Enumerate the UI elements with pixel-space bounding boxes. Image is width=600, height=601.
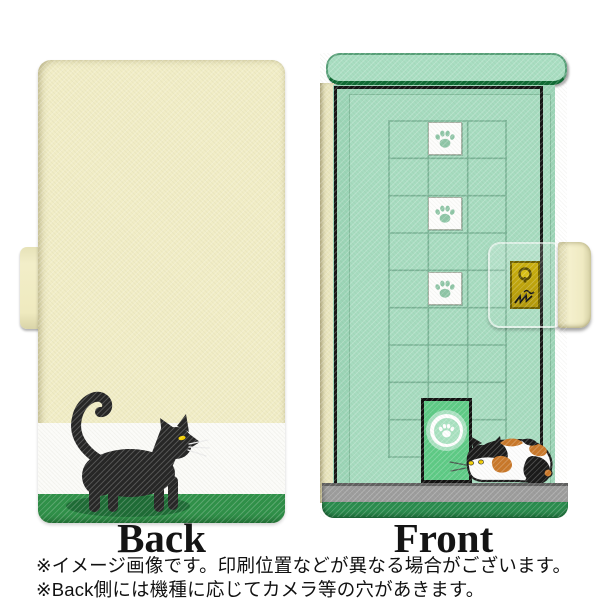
back-view-label: Back [38,517,285,559]
floor-strip [322,483,568,502]
clasp-strap [558,242,591,328]
disclaimer-line-2: ※Back側には機種に応じてカメラ等の穴があきます。 [36,578,596,601]
product-image-canvas: { "product": { "type_label": "phone flip… [0,0,600,600]
calico-eye [468,461,473,465]
front-view-label: Front [320,517,567,559]
black-cat-illustration [58,380,213,520]
keyhole-plate [510,261,540,309]
paw-print-icon [433,127,457,151]
case-back-cover [38,60,285,523]
calico-whiskers [450,462,466,471]
paw-print-icon [433,277,457,301]
paw-tile-2 [428,197,462,230]
calico-cat-illustration [448,434,558,486]
paw-print-icon [433,202,457,226]
front-top-cap [326,53,567,85]
disclaimer-line-1: ※イメージ画像です。印刷位置などが異なる場合がございます。 [36,554,596,578]
claw-scratch-icon [515,295,532,303]
front-spine [320,83,334,503]
paw-tile-1 [428,122,462,155]
paw-tile-3 [428,272,462,305]
case-front-cover [320,53,567,517]
disclaimer-notes: ※イメージ画像です。印刷位置などが異なる場合がございます。 ※Back側には機種… [36,554,596,601]
calico-eye [478,460,483,464]
